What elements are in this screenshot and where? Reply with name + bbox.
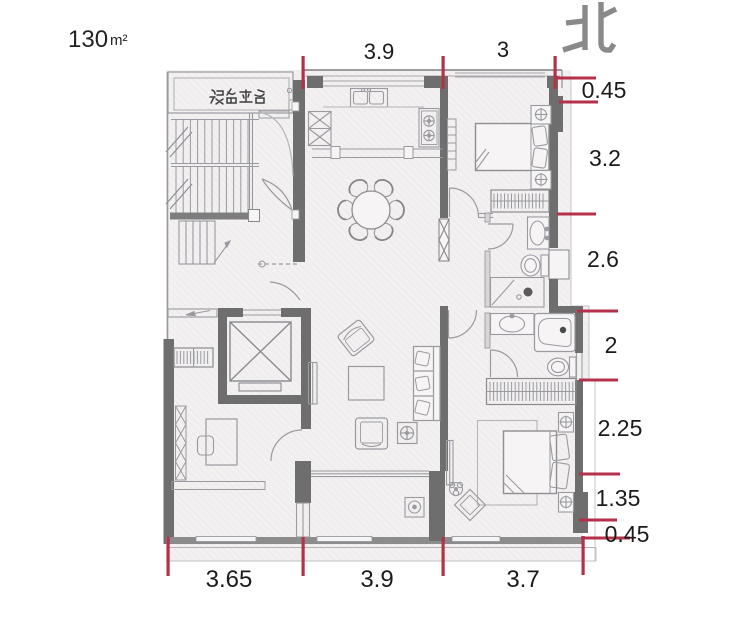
svg-text:3.9: 3.9: [364, 39, 395, 64]
svg-text:m²: m²: [110, 32, 128, 49]
svg-text:3.65: 3.65: [206, 566, 253, 593]
svg-text:130: 130: [68, 26, 108, 53]
svg-text:3.9: 3.9: [360, 566, 393, 593]
svg-text:1.35: 1.35: [596, 485, 641, 511]
svg-text:3.2: 3.2: [589, 145, 621, 171]
svg-text:2.6: 2.6: [587, 246, 619, 272]
svg-text:3: 3: [497, 37, 509, 62]
svg-text:0.45: 0.45: [605, 521, 650, 547]
svg-text:2.25: 2.25: [598, 415, 643, 441]
svg-text:0.45: 0.45: [582, 77, 627, 103]
svg-text:2: 2: [605, 332, 618, 358]
svg-text:3.7: 3.7: [506, 566, 539, 593]
